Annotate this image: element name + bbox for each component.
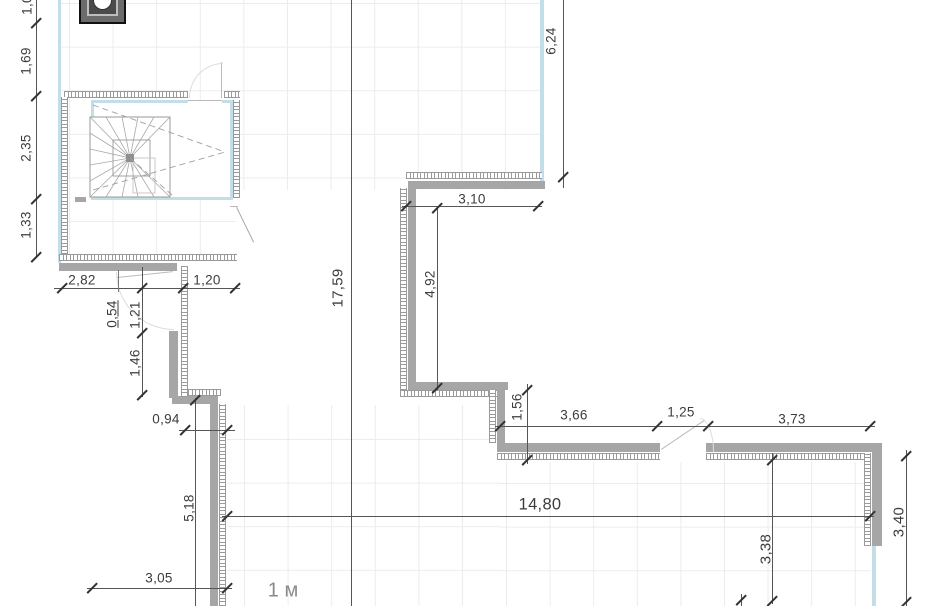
grid-area-bottom-left [227, 405, 500, 606]
dim-label: 3,40 [891, 507, 908, 537]
insulation-hatch [233, 100, 240, 198]
dimension-line [495, 426, 875, 427]
floor-plan-canvas: 1,0 1,69 2,35 1,33 2,82 1,20 0,54 1,21 1… [0, 0, 926, 606]
insulation-hatch [400, 188, 407, 390]
dim-label: 3,66 [560, 408, 587, 423]
door-leaf [236, 207, 254, 242]
dimension-line [36, 0, 37, 258]
insulation-hatch [224, 91, 240, 98]
finish-line-bottom-right [872, 546, 876, 606]
dim-label: 3,73 [778, 412, 805, 427]
wall-segment [169, 331, 178, 398]
wall-segment [408, 382, 508, 390]
scale-label: 1 м [268, 580, 298, 603]
dimension-line [54, 288, 240, 289]
wall-segment [497, 382, 505, 452]
insulation-hatch [497, 453, 660, 460]
wall-segment [706, 443, 882, 452]
dim-label: 1,0 [20, 0, 35, 15]
dimension-line [437, 206, 438, 390]
dim-label: 0,94 [152, 412, 179, 427]
extension-line [118, 270, 119, 292]
door-leaf [661, 420, 705, 450]
insulation-hatch [489, 390, 496, 443]
dimension-line [87, 588, 232, 589]
dim-label: 5,18 [182, 494, 197, 521]
dim-label: 3,10 [458, 192, 485, 207]
insulation-hatch [706, 453, 868, 460]
wall-segment [408, 181, 416, 390]
dim-label: 1,20 [193, 273, 220, 288]
dim-label: 1,69 [19, 47, 34, 74]
insulation-hatch [59, 254, 237, 261]
dim-label: 1,21 [128, 301, 143, 328]
grid-area-bottom-right [500, 462, 871, 606]
insulation-hatch [864, 453, 871, 546]
dim-label: 3,38 [758, 534, 775, 564]
chimney-flue [79, 0, 126, 24]
dimension-line [563, 0, 564, 188]
insulation-hatch [406, 172, 542, 179]
dimension-line-overall-width [222, 516, 874, 517]
dim-label-overall-height: 17,59 [330, 268, 347, 307]
wall-segment [872, 443, 882, 546]
dim-label: 2,82 [68, 273, 95, 288]
winder-stair [88, 98, 238, 204]
wall-segment [408, 181, 545, 189]
dim-label: 4,92 [423, 270, 438, 297]
insulation-hatch [188, 389, 221, 396]
wall-segment [210, 404, 218, 606]
dim-label: 1,56 [510, 393, 525, 420]
dim-label-overall-width: 14,80 [519, 496, 562, 515]
insulation-hatch [64, 91, 188, 98]
dim-label: 1,46 [128, 349, 143, 376]
dim-label: 0,54 [105, 300, 120, 327]
wall-segment [75, 197, 86, 202]
dim-label: 3,05 [145, 571, 172, 586]
dim-label: 1,25 [667, 405, 694, 420]
insulation-hatch [61, 97, 68, 258]
dim-label: 1,33 [19, 211, 34, 238]
dimension-line [772, 453, 773, 604]
door-jamb-mark [230, 206, 238, 207]
chimney-duct-circle [93, 0, 112, 10]
dimension-line [527, 384, 528, 464]
insulation-hatch [400, 390, 497, 397]
dim-label: 2,35 [19, 134, 34, 161]
door-swing-arc [116, 272, 174, 330]
chimney-inner-ring [87, 0, 118, 16]
wall-segment [497, 443, 660, 452]
dim-label: 6,24 [544, 27, 559, 54]
